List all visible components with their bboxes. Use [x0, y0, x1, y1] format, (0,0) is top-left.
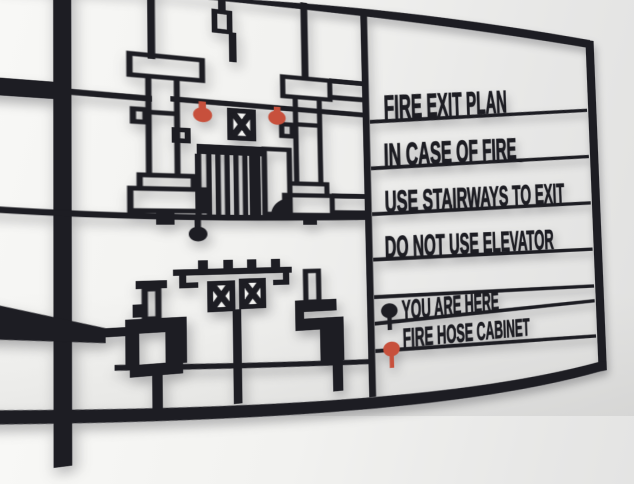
svg-text:DO NOT USE ELEVATOR: DO NOT USE ELEVATOR [384, 224, 554, 265]
svg-text:USE STAIRWAYS TO EXIT: USE STAIRWAYS TO EXIT [384, 178, 564, 219]
svg-text:IN CASE OF FIRE: IN CASE OF FIRE [383, 133, 517, 174]
svg-text:FIRE EXIT PLAN: FIRE EXIT PLAN [383, 84, 507, 127]
